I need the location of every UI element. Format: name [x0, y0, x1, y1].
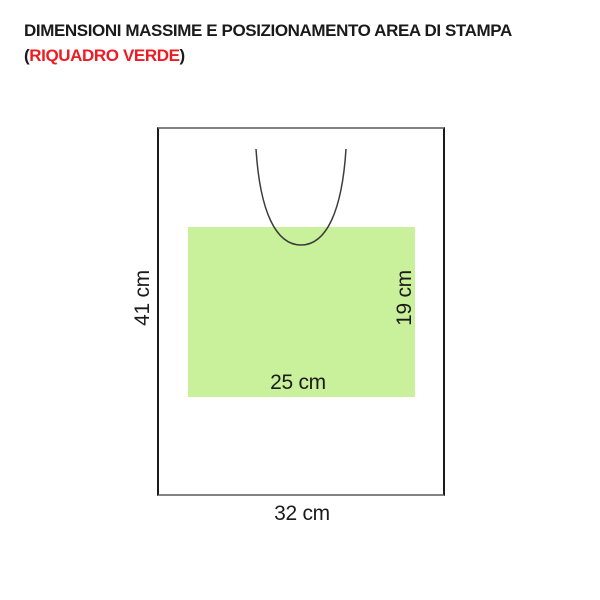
bag-height-dimension-label: 41 cm: [132, 248, 154, 348]
print-area-height-dimension-label: 19 cm: [394, 248, 416, 348]
bag-width-dimension-label: 32 cm: [252, 503, 352, 525]
print-area-infographic: DIMENSIONI MASSIME E POSIZIONAMENTO AREA…: [0, 0, 600, 600]
print-area-width-dimension-label: 25 cm: [248, 372, 348, 394]
bag-diagram: 41 cm 19 cm 25 cm 32 cm: [0, 0, 600, 600]
